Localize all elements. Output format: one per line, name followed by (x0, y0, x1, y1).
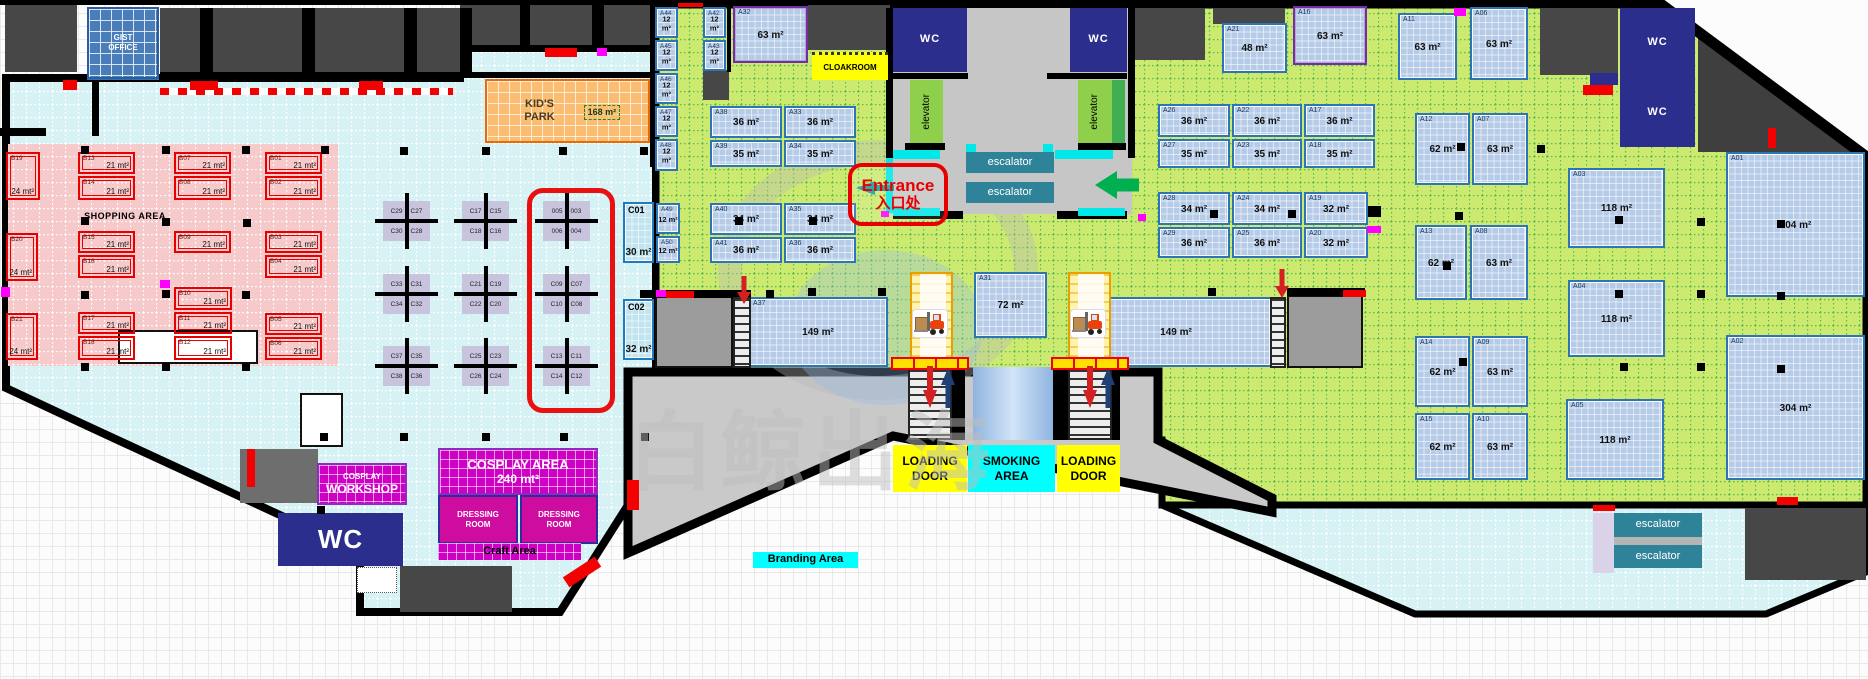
stairs (733, 297, 751, 368)
booth-B18: B1821 mt² (78, 336, 135, 360)
booth-area: 21 mt² (293, 347, 316, 356)
column-dot (1537, 145, 1545, 153)
utility-mark (160, 280, 170, 288)
booth-id: A20 (1309, 230, 1321, 237)
booth-area: 21 mt² (106, 265, 129, 274)
elevator-left: elevator (910, 80, 943, 143)
zone-label: Craft Area (483, 545, 536, 558)
booth-id: A38 (715, 109, 727, 116)
black-block (727, 5, 731, 72)
booth-C35: C35 (407, 346, 431, 366)
utility-mark (1367, 226, 1381, 233)
escalator-se-1: escalator (1614, 513, 1702, 537)
booth-B12: B1221 mt² (174, 336, 232, 360)
booth-A16: A1663 m² (1293, 6, 1367, 65)
graystrip-block (1614, 537, 1702, 545)
booth-id: B03 (270, 234, 282, 241)
booth-A41: A4136 m² (710, 237, 782, 263)
column-dot (242, 146, 250, 154)
column-dot (242, 291, 250, 299)
booth-A25: A2536 m² (1232, 227, 1302, 258)
booth-A44: A4412 m² (655, 7, 678, 38)
booth-id: A13 (1420, 228, 1432, 235)
zone-label: WC (920, 33, 940, 46)
booth-area: 21 mt² (293, 265, 316, 274)
column-dot (1208, 288, 1216, 296)
booth-C15: C15 (486, 201, 510, 221)
booth-A06: A0663 m² (1470, 7, 1528, 80)
black-block (1078, 143, 1126, 150)
zone-label-line: escalator (1636, 518, 1681, 531)
arrow-up-icon (1101, 368, 1114, 408)
door-mark (63, 80, 77, 90)
black-block (0, 0, 1662, 5)
booth-area: 63 m² (1474, 441, 1526, 452)
booth-A01: A01304 m² (1726, 152, 1865, 297)
arrow-part (1275, 286, 1289, 298)
column-dot (1615, 290, 1623, 298)
zone-label: CLOAKROOM (823, 63, 876, 73)
booth-id: B07 (179, 155, 191, 162)
craft-area: Craft Area (438, 543, 581, 560)
booth-C28: C28 (407, 221, 431, 241)
zone-label: WC (1088, 33, 1108, 46)
booth-area: 12 m² (657, 47, 676, 65)
utility-mark (597, 48, 607, 56)
booth-A18: A1835 m² (1304, 139, 1375, 168)
booth-A24: A2434 m² (1232, 192, 1302, 225)
zone-label-line: elevator (1089, 94, 1101, 130)
booth-id: A02 (1731, 338, 1743, 345)
zone-label-line: WC (920, 33, 940, 46)
column-dot (809, 217, 817, 225)
booth-area: 12 m² (705, 14, 724, 32)
booth-A34: A3435 m² (784, 140, 856, 167)
booth-area: 21 mt² (202, 240, 225, 249)
booth-B10: B1021 mt² (174, 287, 232, 310)
door-mark (247, 449, 255, 487)
column-dot (1455, 212, 1463, 220)
booth-A07: A0763 m² (1472, 113, 1528, 185)
booth-area: 21 mt² (106, 240, 129, 249)
booth-id: C01 (628, 205, 645, 215)
entrance-label-zh: 入口处 (875, 196, 920, 213)
booth-B21: B2124 mt² (6, 313, 38, 360)
zone-label: KID'SPARK (524, 98, 554, 124)
dark-block (1745, 508, 1866, 580)
arrow-part (737, 292, 751, 304)
booth-area: 36 m² (786, 245, 854, 256)
column-dot (766, 290, 774, 298)
zone-label-line: OFFICE (108, 43, 137, 53)
zone-label-line: escalator (988, 156, 1033, 169)
booth-area: 21 mt² (203, 321, 226, 330)
escalator-se-2: escalator (1614, 545, 1702, 568)
column-dot (482, 147, 490, 155)
booth-A08: A0863 m² (1470, 225, 1528, 300)
black-block (0, 128, 46, 136)
watermark-text: 白鲸出海 (628, 382, 996, 507)
threshold-strip (1055, 150, 1113, 159)
booth-id: A33 (789, 109, 801, 116)
zone-label-line: PARK (524, 111, 554, 124)
dark-block (1133, 8, 1205, 60)
door-mark (666, 291, 694, 298)
dark-block (400, 566, 512, 612)
booth-C18: C18 (462, 221, 486, 241)
zone-label-line: Craft Area (483, 545, 536, 558)
booth-B15: B1521 mt² (78, 231, 135, 253)
booth-id: B09 (179, 234, 191, 241)
booth-area: 63 m² (1474, 144, 1526, 155)
booth-id: B16 (83, 258, 95, 265)
zone-label-line: SHOPPING AREA (84, 211, 166, 222)
booth-id: A35 (789, 206, 801, 213)
booth-id: A25 (1237, 230, 1249, 237)
booth-area: 21 mt² (202, 161, 225, 170)
booth-C34: C34 (383, 294, 407, 314)
column-dot (1210, 210, 1218, 218)
door-mark (190, 81, 218, 90)
booth-id: A16 (1298, 9, 1310, 16)
booth-C33: C33 (383, 274, 407, 294)
booth-area: 21 mt² (203, 347, 226, 356)
booth-area: 63 m² (1472, 38, 1526, 49)
booth-area: 118 m² (1568, 434, 1662, 445)
booth-area: 118 m² (1570, 313, 1663, 324)
zone-label: escalator (1636, 518, 1681, 531)
kids-park: KID'SPARK168 m² (485, 79, 650, 143)
black-block (1053, 366, 1068, 440)
booth-cluster-C29: C29C27C30C28 (383, 201, 430, 241)
zone-label-line: WC (1647, 36, 1667, 49)
booth-B09: B0921 mt² (174, 231, 231, 253)
door-mark (1768, 128, 1776, 148)
column-dot (242, 363, 250, 371)
utility-mark (1138, 214, 1146, 221)
column-dot (162, 363, 170, 371)
column-dot (735, 217, 743, 225)
booth-A14: A1462 m² (1415, 336, 1470, 407)
column-dot (808, 288, 816, 296)
zone-label: LOADINGDOOR (1061, 454, 1116, 483)
entrance-marker: Entrance入口处 (848, 163, 948, 226)
column-dot (1288, 210, 1296, 218)
booth-A38: A3836 m² (710, 106, 782, 138)
door-mark (1583, 85, 1613, 95)
column-dot (321, 146, 329, 154)
booth-id: B15 (83, 234, 95, 241)
booth-C37: C37 (383, 346, 407, 366)
booth-id: A31 (979, 275, 991, 282)
arrow-down-icon (1083, 366, 1097, 408)
booth-C36: C36 (407, 366, 431, 386)
booth-C29: C29 (383, 201, 407, 221)
booth-A31: A3172 m² (974, 272, 1047, 338)
door-mark (678, 3, 703, 7)
booth-area: 35 m² (1160, 148, 1228, 159)
booth-id: A21 (1227, 26, 1239, 33)
booth-id: A08 (1475, 228, 1487, 235)
booth-A35: A3534 m² (784, 203, 856, 235)
zone-label-line: KID'S (524, 98, 554, 111)
zone-label: WC (1647, 106, 1667, 119)
zone-label-line: DOOR (1061, 469, 1116, 483)
column-dot (1697, 363, 1705, 371)
escalator-top-1: escalator (966, 152, 1054, 173)
booth-area: 35 m² (712, 148, 780, 159)
zone-label-line: COSPLAY (326, 472, 398, 482)
booth-A50: A5012 m² (656, 236, 680, 263)
booth-area: 21 mt² (106, 161, 129, 170)
zone-label-line: ROOM (538, 520, 580, 530)
booth-cluster-C21: C21C19C22C20 (462, 274, 509, 314)
dark-block (1213, 8, 1285, 24)
black-block (1128, 8, 1135, 158)
zone-label-line: WC (318, 524, 363, 555)
booth-area: 35 m² (1306, 148, 1373, 159)
booth-cluster-C17: C17C15C18C16 (462, 201, 509, 241)
column-dot (482, 433, 490, 441)
booth-id: A37 (753, 300, 765, 307)
booth-B14: B1421 mt² (78, 176, 135, 200)
column-dot (81, 217, 89, 225)
utility-mark (1, 287, 10, 297)
booth-A10: A1063 m² (1472, 413, 1528, 480)
booth-C19: C19 (486, 274, 510, 294)
booth-A22: A2236 m² (1232, 104, 1302, 137)
arrow-left-icon (1095, 171, 1139, 199)
branding-area: Branding Area (753, 552, 858, 568)
arrow-part (1115, 179, 1139, 192)
column-dot (1443, 262, 1451, 270)
booth-A49: A4912 m² (656, 203, 680, 234)
booth-id: A03 (1573, 171, 1585, 178)
booth-area: 63 m² (1472, 257, 1526, 268)
booth-id: A26 (1163, 107, 1175, 114)
booth-id: B10 (179, 290, 191, 297)
black-block (404, 8, 417, 72)
booth-id: A07 (1477, 116, 1489, 123)
booth-A45: A4512 m² (655, 40, 678, 71)
booth-id: A11 (1403, 16, 1415, 23)
booth-B06: B0621 mt² (265, 337, 322, 360)
zone-label: COSPLAY AREA240 mt² (467, 457, 568, 487)
booth-A15: A1562 m² (1415, 413, 1470, 480)
escalator-top-2: escalator (966, 182, 1054, 203)
column-dot (1457, 143, 1465, 151)
column-dot (1777, 365, 1785, 373)
zone-label: elevator (921, 94, 933, 130)
booth-id: A17 (1309, 107, 1321, 114)
elevator-right: elevator (1078, 80, 1112, 143)
dressing-room-1: DRESSINGROOM (438, 495, 518, 544)
dark-block (703, 70, 729, 100)
wc-main: WC (278, 513, 403, 566)
booth-id: A10 (1477, 416, 1489, 423)
booth-C17: C17 (462, 201, 486, 221)
utility-mark (656, 290, 666, 297)
door-mark (359, 81, 383, 90)
booth-C16: C16 (486, 221, 510, 241)
booth-B04: B0421 mt² (265, 255, 322, 278)
booth-B01: B0121 mt² (265, 152, 322, 174)
black-block (520, 0, 530, 45)
zone-label: DRESSINGROOM (457, 510, 499, 529)
floor-plan: 白鲸出海 A4412 m²A4512 m²A4612 m²A4712 m²A48… (0, 0, 1868, 679)
door-mark (1777, 497, 1798, 505)
black-block (92, 78, 99, 136)
booth-A32: A3263 m² (733, 6, 808, 63)
booth-id: A40 (715, 206, 727, 213)
booth-id: B20 (11, 236, 23, 243)
forklift-icon (913, 310, 947, 337)
zone-label: Branding Area (768, 553, 843, 566)
black-block (592, 0, 604, 45)
gist-office: GISTOFFICE (87, 7, 159, 79)
zone-label: DRESSINGROOM (538, 510, 580, 529)
booth-A02: A02304 m² (1726, 335, 1865, 480)
booth-area: 12 m² (658, 245, 678, 254)
booth-B05: B0521 mt² (265, 313, 322, 335)
booth-B20: B2024 mt² (6, 233, 38, 281)
booth-area: 48 m² (1224, 43, 1285, 54)
lavender-block (1593, 513, 1614, 573)
booth-area: 21 mt² (202, 187, 225, 196)
zone-label-line: 240 mt² (467, 472, 568, 486)
column-dot (1697, 290, 1705, 298)
booth-area: 21 mt² (293, 187, 316, 196)
booth-id: B02 (270, 179, 282, 186)
zone-label-line: WC (1088, 33, 1108, 46)
booth-B03: B0321 mt² (265, 231, 322, 253)
zone-label-line: COSPLAY AREA (467, 457, 568, 473)
booth-A05: A05118 m² (1566, 399, 1664, 480)
booth-id: B05 (270, 316, 282, 323)
booth-area: 36 m² (1160, 115, 1228, 126)
booth-area: 21 mt² (203, 297, 226, 306)
zone-label-line: Branding Area (768, 553, 843, 566)
booth-cluster-C33: C33C31C34C32 (383, 274, 430, 314)
wc-ne-lower: WC (1620, 78, 1695, 147)
booth-A03: A03118 m² (1568, 168, 1665, 248)
booth-A37: A37149 m² (748, 297, 888, 367)
booth-id: B13 (83, 155, 95, 162)
zone-label: elevator (1089, 94, 1101, 130)
booth-area: 24 mt² (11, 187, 34, 196)
booth-area: 304 m² (1728, 402, 1863, 413)
column-dot (162, 146, 170, 154)
entrance-label-en: Entrance (862, 177, 935, 196)
column-dot (81, 291, 89, 299)
column-dot (400, 433, 408, 441)
door-mark (1343, 290, 1366, 297)
booth-area: 63 m² (735, 29, 806, 40)
column-dot (1777, 292, 1785, 300)
booth-B16: B1621 mt² (78, 255, 135, 278)
cosplay-workshop: COSPLAYWORKSHOP (317, 463, 407, 505)
booth-A46: A4612 m² (655, 73, 678, 104)
booth-cluster-C37: C37C35C38C36 (383, 346, 430, 386)
zone-label-line: DRESSING (457, 510, 499, 520)
booth-cluster-C25: C25C23C26C24 (462, 346, 509, 386)
booth-area: 34 m² (712, 214, 780, 225)
arrow-part (1095, 171, 1117, 199)
booth-A39: A3935 m² (710, 140, 782, 167)
booth-A48: A4812 m² (655, 139, 678, 171)
booth-A28: A2834 m² (1158, 192, 1230, 225)
booth-C22: C22 (462, 294, 486, 314)
column-dot (1620, 363, 1628, 371)
booth-area: 12 m² (657, 147, 676, 165)
booth-area: 21 mt² (106, 187, 129, 196)
booth-id: A09 (1477, 339, 1489, 346)
booth-area: 149 m² (750, 327, 886, 338)
column-dot (1459, 358, 1467, 366)
booth-area: 36 m² (786, 117, 854, 128)
booth-area: 21 mt² (106, 321, 129, 330)
wc-court-right: WC (1070, 8, 1127, 72)
booth-C25: C25 (462, 346, 486, 366)
black-block (893, 73, 968, 79)
booth-area: 32 m² (1306, 237, 1366, 248)
booth-area: 36 m² (712, 245, 780, 256)
booth-id: A15 (1420, 416, 1432, 423)
booth-A47: A4712 m² (655, 106, 678, 137)
booth-C23: C23 (486, 346, 510, 366)
forklift-icon (1071, 310, 1105, 337)
booth-area: 12 m² (657, 14, 676, 32)
booth-B08: B0821 mt² (174, 176, 231, 200)
column-dot (400, 147, 408, 155)
booth-area: 24 mt² (9, 268, 32, 277)
booth-A42: A4212 m² (703, 7, 726, 38)
booth-id: B19 (11, 155, 23, 162)
column-dot (1697, 218, 1705, 226)
booth-area: 32 m² (625, 344, 652, 355)
column-dot (878, 288, 886, 296)
booth-C30: C30 (383, 221, 407, 241)
zone-label-line: DRESSING (538, 510, 580, 520)
booth-area: 35 m² (1234, 148, 1300, 159)
booth-area: 118 m² (1570, 203, 1663, 214)
booth-C21: C21 (462, 274, 486, 294)
booth-id: B11 (179, 315, 190, 322)
booth-area: 62 m² (1417, 441, 1468, 452)
booth-area: 34 m² (786, 214, 854, 225)
zone-label: escalator (988, 156, 1033, 169)
booth-id: A04 (1573, 283, 1585, 290)
booth-area: 30 m² (625, 247, 652, 258)
booth-area: 62 m² (1417, 257, 1465, 268)
booth-id: A19 (1309, 195, 1321, 202)
zone-label: SHOPPING AREA (84, 211, 166, 222)
booth-C32: C32 (407, 294, 431, 314)
booth-id: B01 (270, 155, 282, 162)
booth-C38: C38 (383, 366, 407, 386)
column-dot (320, 433, 328, 441)
zone-label-line: escalator (1636, 550, 1681, 563)
greenstrip-block (1112, 80, 1125, 143)
black-block (886, 8, 893, 158)
booth-id: A01 (1731, 155, 1743, 162)
zone-label: WC (1647, 36, 1667, 49)
room-block (1287, 295, 1363, 368)
room-block (655, 295, 733, 368)
booth-id: A29 (1163, 230, 1175, 237)
arrow-down-icon (737, 276, 750, 304)
zone-area-tag: 168 m² (584, 105, 621, 120)
